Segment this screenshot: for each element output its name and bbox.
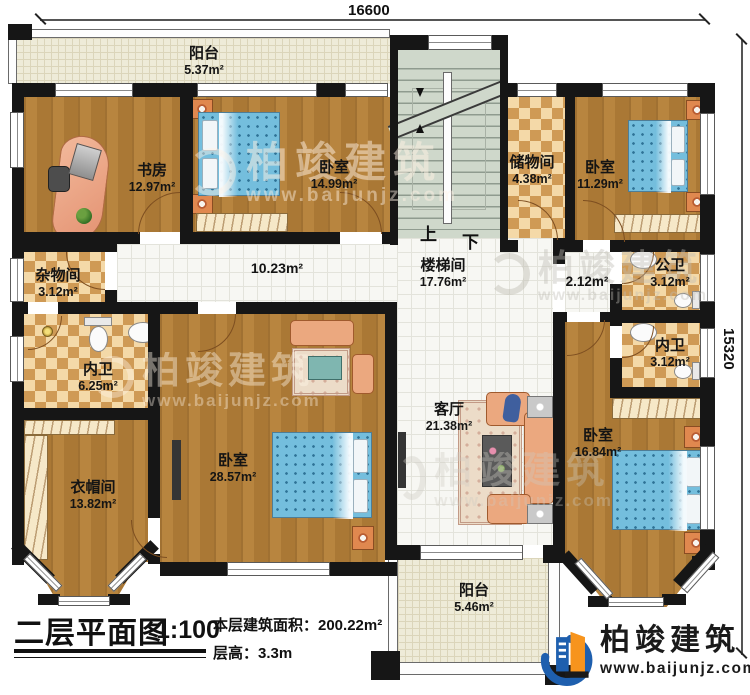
bed: [612, 450, 704, 530]
wall: [558, 240, 570, 252]
dimension-line-right: [741, 40, 743, 655]
room-label-utility: 杂物间3.12m²: [35, 268, 80, 299]
wall: [688, 83, 715, 97]
stair-arrow-up: [416, 124, 424, 133]
wall: [12, 408, 160, 420]
room-label-bedroom-14: 卧室14.99m²: [311, 160, 358, 191]
wardrobe: [612, 398, 704, 419]
wall: [105, 290, 117, 302]
window: [428, 35, 492, 50]
nightstand: [191, 194, 213, 214]
room-label-private-bath-312: 内卫3.12m²: [650, 338, 690, 369]
room-label-stairwell: 楼梯间17.76m²: [420, 258, 467, 289]
page-title: 二层平面图: [14, 608, 169, 652]
dimension-top-value: 16600: [348, 2, 390, 19]
room-label-balcony-bottom: 阳台5.46m²: [454, 583, 494, 614]
toilet-tank: [692, 362, 700, 380]
room-label-balcony-top: 阳台5.37m²: [184, 46, 224, 77]
window: [197, 83, 317, 97]
room-label-bedroom-11: 卧室11.29m²: [577, 160, 623, 191]
toilet: [89, 326, 108, 352]
dimension-right-value: 15320: [720, 328, 737, 370]
window: [227, 562, 330, 576]
bed: [198, 112, 280, 196]
company-logo: 柏竣建筑 www.baijunjz.com: [538, 624, 750, 695]
window: [700, 328, 715, 378]
room-label-storage: 储物间4.38m²: [509, 155, 554, 186]
balcony-bottom-railing-bottom: [398, 662, 550, 675]
bed: [628, 120, 688, 192]
bay-wall: [662, 594, 686, 605]
wall: [317, 83, 345, 97]
title-underline-thick: [14, 649, 206, 653]
wall: [610, 284, 622, 326]
wall: [330, 562, 397, 576]
wall: [622, 310, 715, 323]
window: [10, 112, 24, 168]
nightstand: [352, 526, 374, 550]
coffee-table: [482, 435, 512, 487]
sofa: [487, 494, 531, 524]
wall: [557, 83, 602, 97]
window: [608, 597, 664, 607]
stair-arrow-down: [416, 88, 424, 97]
room-label-bedroom-16: 卧室16.84m²: [575, 428, 622, 459]
side-table: [527, 396, 553, 418]
balcony-door: [345, 83, 388, 97]
wall: [12, 240, 117, 252]
wall: [12, 302, 28, 314]
floor-height-text: 层高：3.3m: [213, 642, 292, 663]
wall: [622, 240, 715, 252]
wardrobe: [24, 420, 115, 435]
window: [700, 446, 715, 530]
wall: [105, 240, 117, 252]
wall: [500, 83, 517, 97]
balcony-post: [371, 651, 400, 680]
wall: [12, 83, 55, 97]
company-logo-icon: [538, 624, 594, 695]
stair-up-label: 上: [420, 220, 437, 245]
wall: [133, 83, 197, 97]
bay-wall: [38, 594, 60, 605]
room-label-master-bedroom: 卧室28.57m²: [210, 453, 257, 484]
plant: [76, 208, 92, 224]
stair-down-label: 下: [462, 228, 479, 253]
room-label-study: 书房12.97m²: [129, 163, 176, 194]
armchair: [352, 354, 374, 394]
tv: [398, 432, 406, 488]
room-label-corridor-small: 2.12m²: [566, 274, 609, 289]
balcony-top-railing: [8, 29, 390, 38]
wall: [575, 240, 583, 252]
room-label-living-room: 客厅21.38m²: [426, 402, 473, 433]
wall: [385, 545, 420, 560]
toilet: [674, 293, 692, 308]
title-scale: 1:100: [156, 616, 220, 645]
coffee-table: [308, 356, 342, 380]
wall: [390, 35, 398, 245]
wall: [382, 232, 390, 244]
wall: [58, 302, 198, 314]
wall: [180, 232, 340, 244]
window: [517, 83, 557, 97]
sofa: [524, 412, 554, 504]
wall: [500, 240, 518, 252]
side-table: [527, 504, 553, 524]
room-label-corridor: 10.23m²: [251, 261, 303, 277]
wall: [385, 302, 397, 560]
wall: [236, 302, 390, 314]
window: [55, 83, 133, 97]
window: [700, 254, 715, 302]
window: [10, 336, 24, 382]
wall: [553, 312, 565, 545]
room-label-public-bath: 公卫3.12m²: [650, 258, 690, 289]
window: [602, 83, 688, 97]
company-url: www.baijunjz.com: [600, 660, 750, 678]
office-chair: [48, 166, 70, 192]
tv: [172, 440, 181, 500]
room-label-cloakroom: 衣帽间13.82m²: [70, 480, 117, 511]
room-label-private-bath-625: 内卫6.25m²: [78, 362, 118, 393]
stair-handrail: [443, 72, 452, 224]
window: [58, 596, 110, 606]
wall: [553, 312, 567, 322]
window: [700, 113, 715, 195]
floor-plan: 上 下: [0, 0, 750, 695]
toilet-tank: [84, 317, 112, 326]
window: [10, 258, 24, 302]
wardrobe: [24, 435, 48, 560]
dimension-line-top: [40, 19, 705, 21]
wall: [180, 97, 193, 232]
bed: [272, 432, 372, 518]
stairs: [398, 50, 500, 238]
window: [420, 545, 523, 560]
wall: [565, 83, 575, 252]
wardrobe: [196, 213, 288, 232]
title-underline-thin: [14, 657, 206, 658]
bay-wall: [108, 594, 130, 605]
wall: [160, 562, 227, 576]
floor-area-text: 本层建筑面积：200.22m²: [213, 614, 382, 635]
sofa: [290, 320, 354, 346]
wall: [610, 387, 715, 398]
company-name: 柏竣建筑: [600, 624, 750, 657]
wall: [8, 24, 32, 40]
wardrobe: [614, 214, 708, 233]
toilet-tank: [692, 291, 700, 309]
wall: [500, 35, 508, 252]
